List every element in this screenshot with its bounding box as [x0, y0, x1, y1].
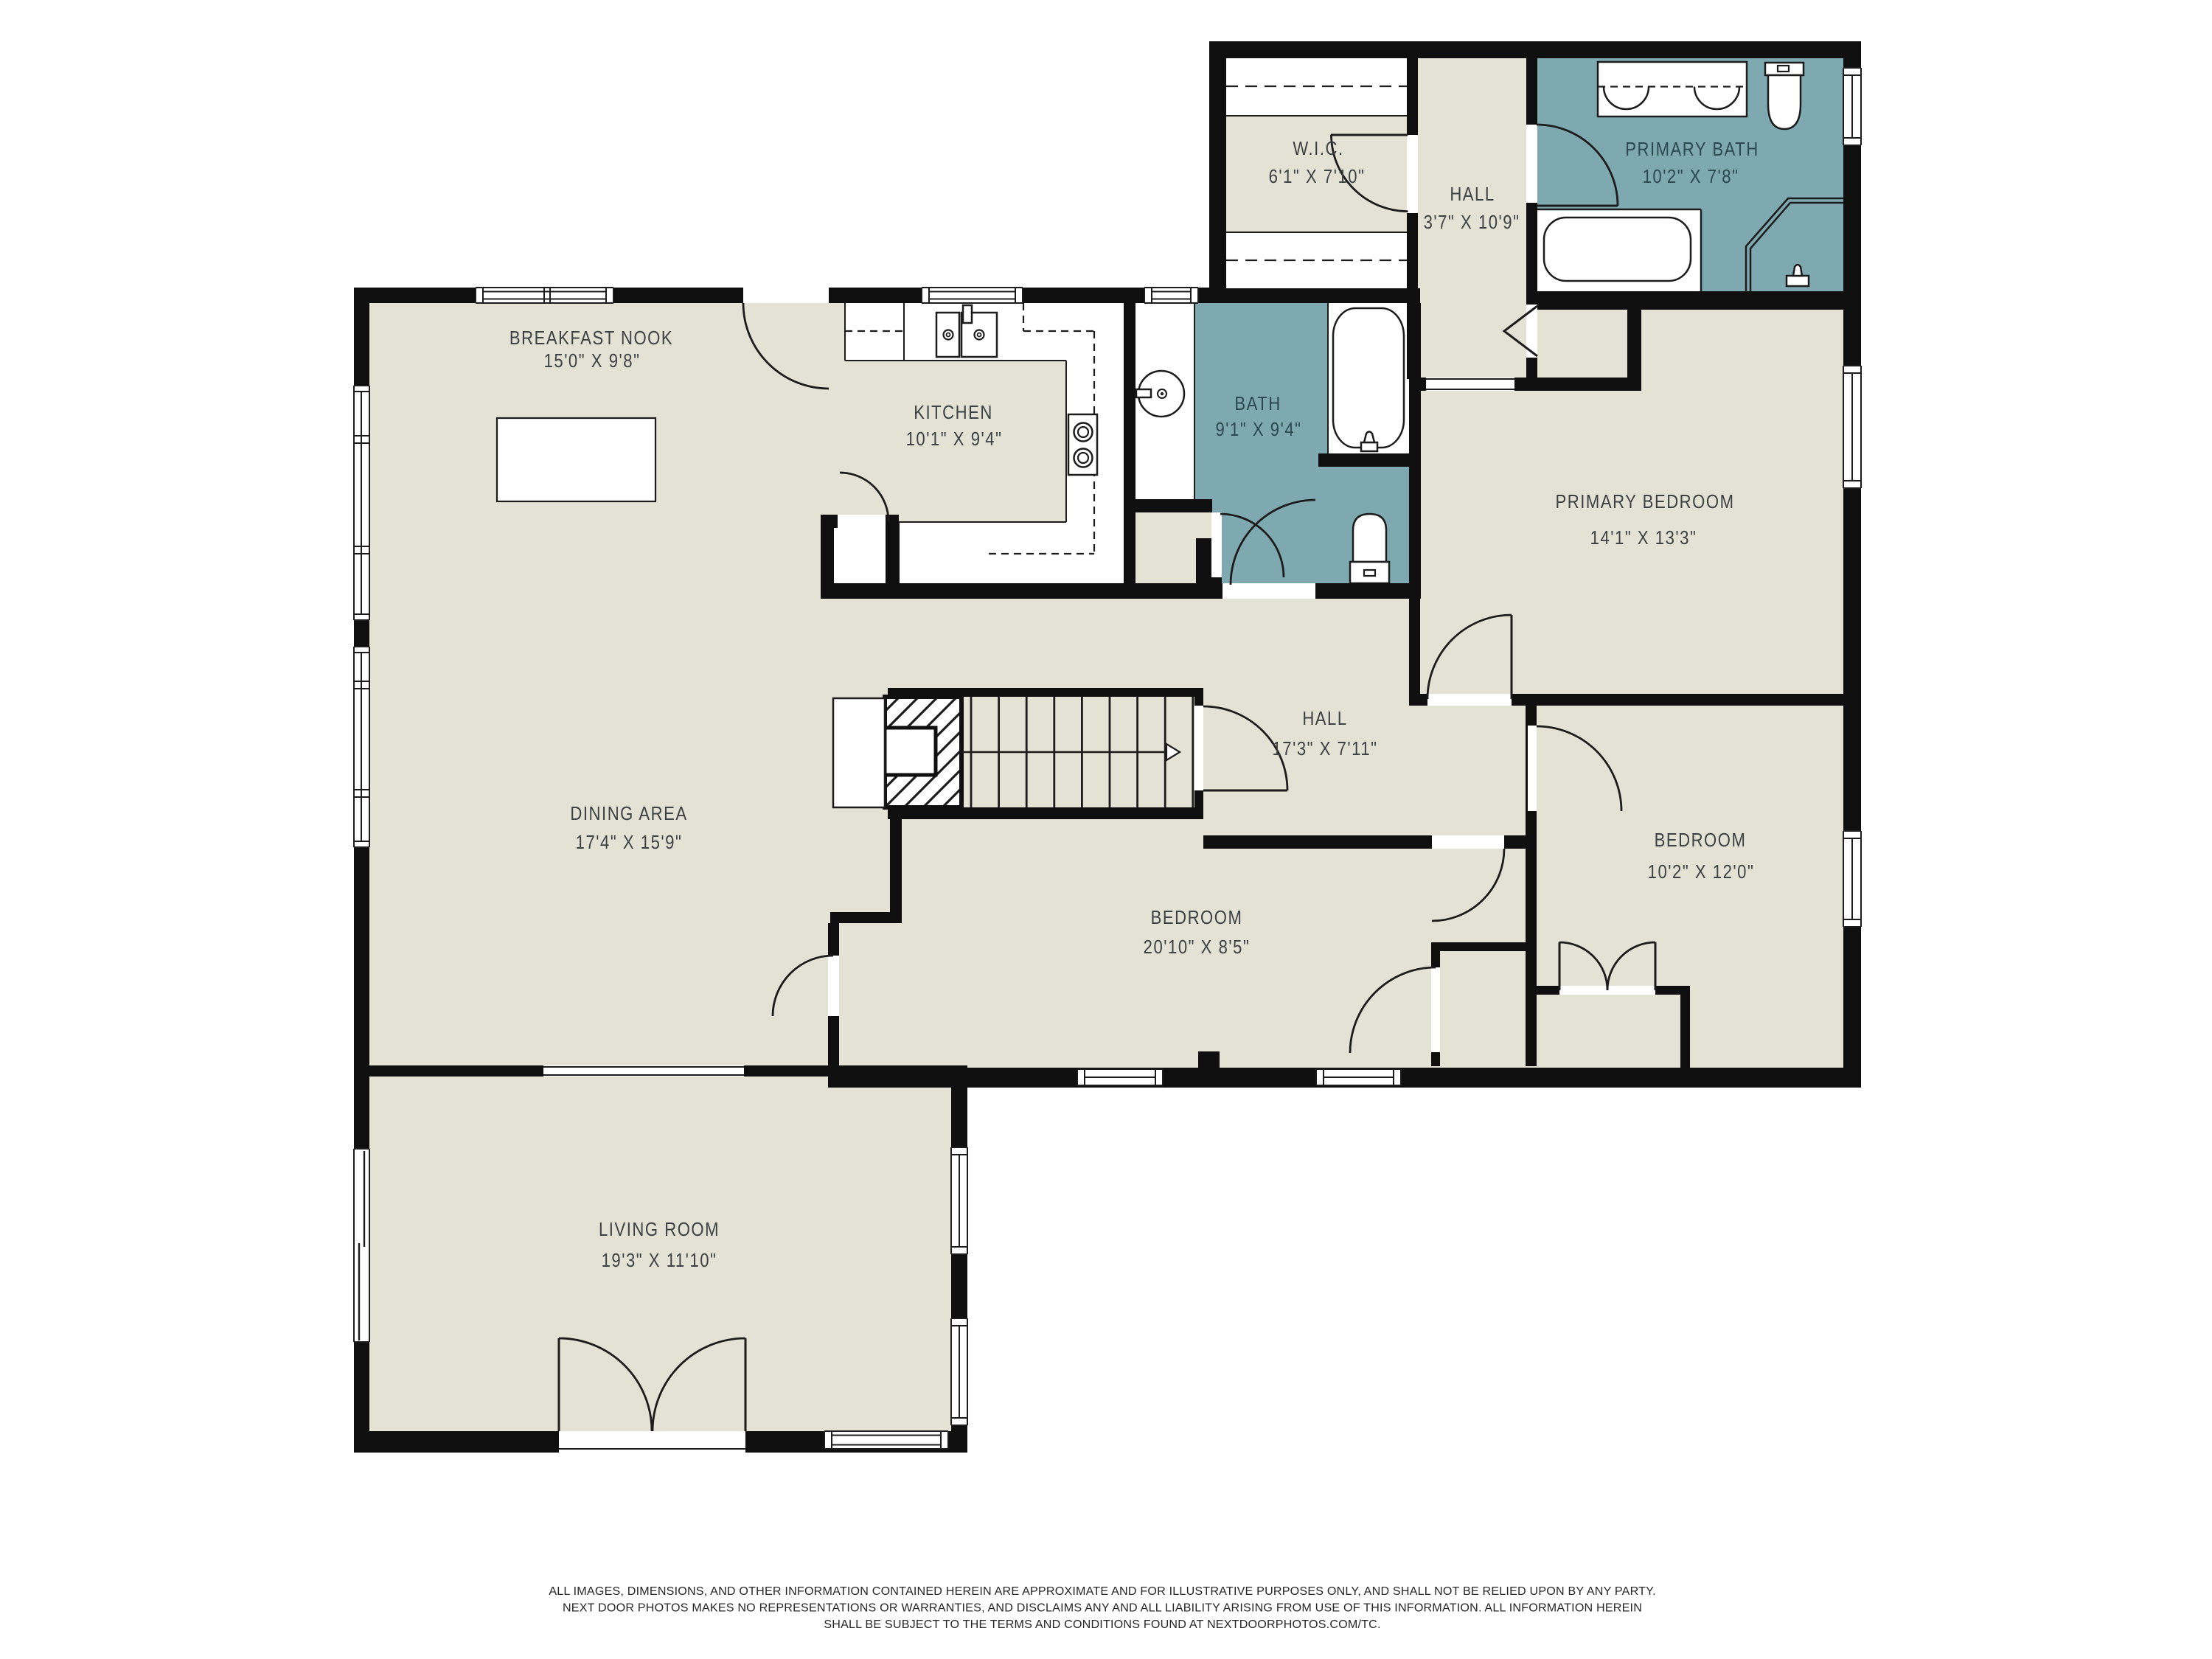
svg-text:ALL IMAGES, DIMENSIONS, AND OT: ALL IMAGES, DIMENSIONS, AND OTHER INFORM…	[549, 1585, 1655, 1598]
svg-text:17'3" X 7'11": 17'3" X 7'11"	[1272, 738, 1377, 759]
svg-text:W.I.C.: W.I.C.	[1293, 138, 1343, 159]
svg-text:3'7" X 10'9": 3'7" X 10'9"	[1424, 212, 1520, 233]
svg-text:BEDROOM: BEDROOM	[1655, 829, 1747, 851]
svg-text:HALL: HALL	[1450, 184, 1495, 205]
svg-text:HALL: HALL	[1302, 708, 1347, 729]
svg-text:10'2" X 7'8": 10'2" X 7'8"	[1643, 166, 1739, 187]
svg-text:14'1" X 13'3": 14'1" X 13'3"	[1590, 527, 1697, 549]
svg-text:9'1" X 9'4": 9'1" X 9'4"	[1215, 419, 1301, 440]
svg-text:PRIMARY BEDROOM: PRIMARY BEDROOM	[1555, 491, 1734, 512]
svg-text:KITCHEN: KITCHEN	[914, 402, 993, 423]
svg-text:17'4" X 15'9": 17'4" X 15'9"	[576, 832, 683, 853]
svg-text:6'1" X 7'10": 6'1" X 7'10"	[1269, 166, 1366, 187]
svg-text:NEXT DOOR PHOTOS MAKES NO REPR: NEXT DOOR PHOTOS MAKES NO REPRESENTATION…	[563, 1601, 1642, 1615]
svg-text:10'2" X 12'0": 10'2" X 12'0"	[1648, 861, 1755, 883]
svg-text:DINING AREA: DINING AREA	[570, 803, 687, 824]
svg-text:BREAKFAST NOOK: BREAKFAST NOOK	[509, 327, 673, 349]
svg-text:19'3" X 11'10": 19'3" X 11'10"	[602, 1250, 717, 1271]
svg-text:PRIMARY BATH: PRIMARY BATH	[1625, 139, 1759, 160]
svg-text:10'1" X 9'4": 10'1" X 9'4"	[906, 428, 1003, 450]
svg-text:20'10" X 8'5": 20'10" X 8'5"	[1144, 936, 1251, 958]
svg-text:15'0" X 9'8": 15'0" X 9'8"	[544, 350, 641, 372]
svg-text:BEDROOM: BEDROOM	[1151, 907, 1243, 928]
svg-text:BATH: BATH	[1234, 393, 1281, 414]
svg-text:SHALL BE SUBJECT TO THE TERMS: SHALL BE SUBJECT TO THE TERMS AND CONDIT…	[824, 1618, 1380, 1631]
svg-text:LIVING ROOM: LIVING ROOM	[599, 1219, 720, 1240]
